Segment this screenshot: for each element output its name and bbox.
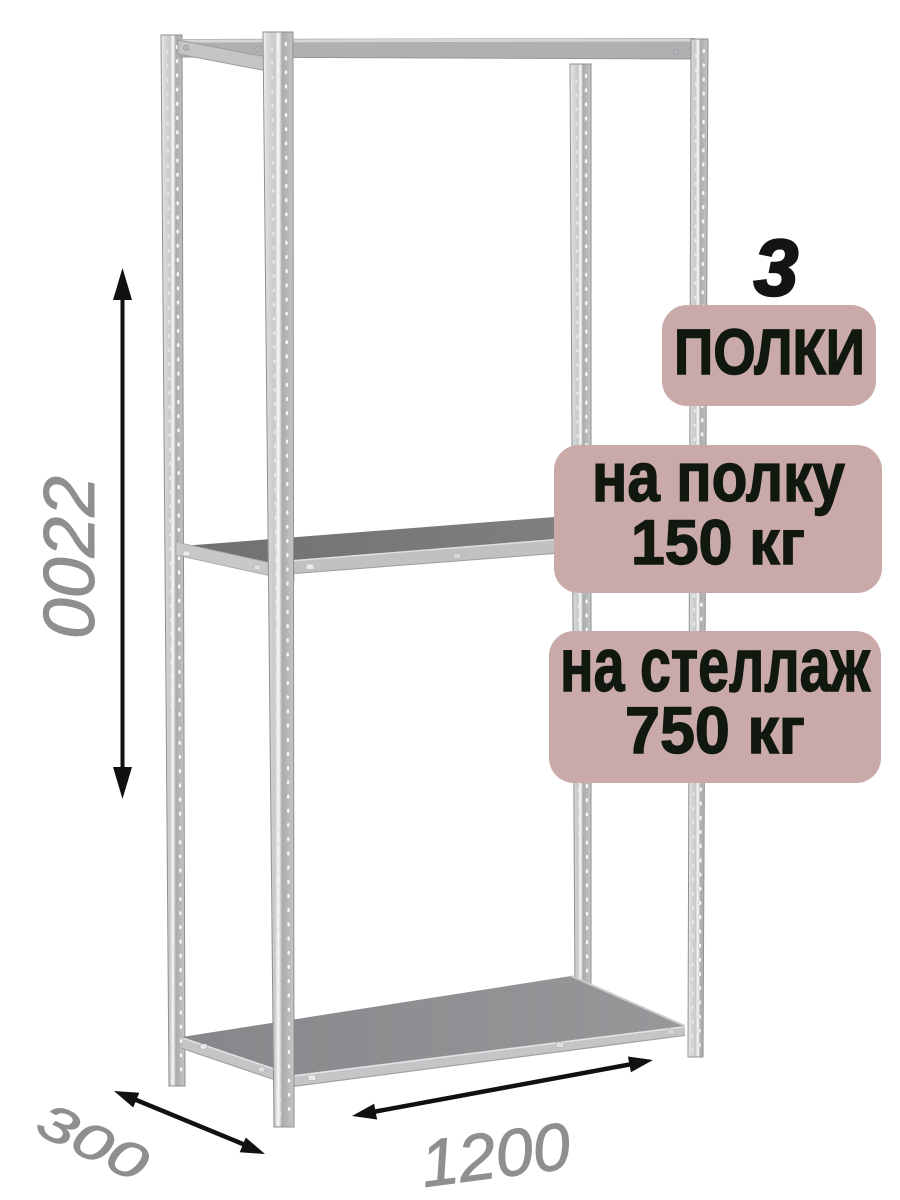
svg-text:0022: 0022: [30, 476, 110, 639]
svg-text:300: 300: [28, 1092, 157, 1193]
svg-text:1200: 1200: [416, 1108, 575, 1200]
